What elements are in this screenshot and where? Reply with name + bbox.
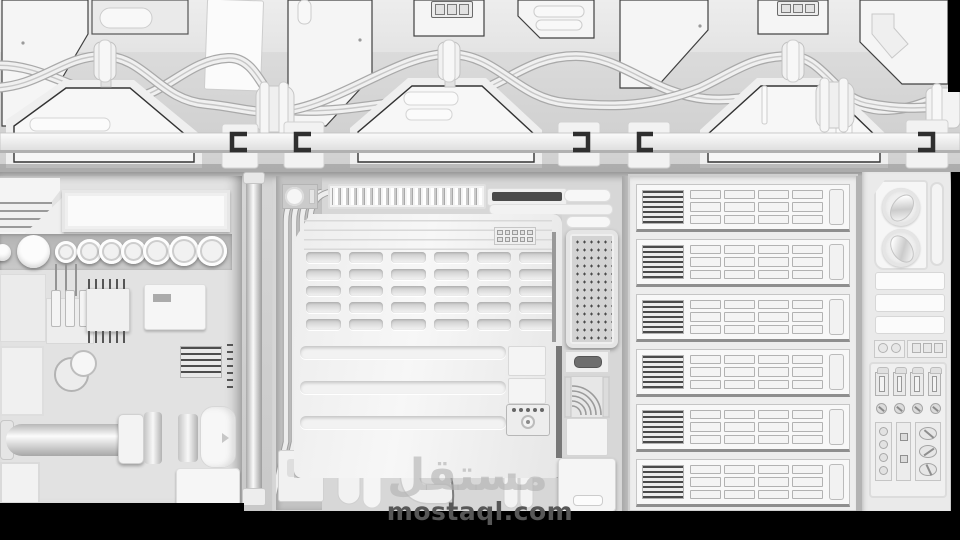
tray-cell	[758, 270, 789, 279]
tray-cell	[758, 245, 789, 254]
rack-vent-grille	[642, 410, 684, 444]
tray-cell	[758, 312, 789, 321]
oval-knob-strip	[915, 422, 941, 481]
tray-cell	[690, 325, 721, 334]
ctrl-dot	[519, 408, 523, 412]
midsq	[900, 433, 908, 441]
tray-cell	[690, 202, 721, 211]
rack-vent-grille	[642, 465, 684, 499]
greeble-wall-render: مستقل mostaql.com	[0, 0, 960, 540]
tray-cell	[792, 215, 823, 224]
rbar	[875, 316, 945, 334]
handle-pill	[536, 20, 582, 30]
handle-pill	[534, 6, 584, 17]
arc	[572, 386, 601, 415]
vent-slot	[349, 252, 384, 263]
ovalknob	[919, 463, 937, 476]
tray-cell	[690, 465, 721, 474]
groove	[300, 346, 506, 359]
piston-flange	[144, 412, 162, 464]
ovalknob	[919, 427, 937, 440]
access-plate	[508, 346, 546, 376]
vent-slot	[434, 269, 469, 280]
small-bar	[309, 189, 315, 204]
minicirc	[878, 343, 888, 353]
tray-cell	[690, 355, 721, 364]
tray-cell	[792, 380, 823, 389]
screw	[930, 403, 941, 414]
keysw	[893, 372, 907, 396]
tray-cell	[758, 477, 789, 486]
dip-cell	[497, 230, 503, 235]
pipe-cap	[243, 172, 265, 184]
tray-cell	[758, 202, 789, 211]
screw	[912, 403, 923, 414]
tray-cell	[758, 435, 789, 444]
right-black-edge	[951, 172, 960, 540]
vent-slot	[306, 302, 341, 313]
dark-display-bar	[492, 192, 562, 201]
vent-slot	[477, 269, 512, 280]
dip-cell	[527, 230, 533, 235]
vent-slot	[391, 252, 426, 263]
groove-group	[300, 346, 506, 451]
tray-cell	[758, 380, 789, 389]
tray-cell	[690, 490, 721, 499]
rack-tray-grid	[690, 465, 823, 499]
tray-cell	[690, 410, 721, 419]
light-box-panel	[62, 190, 230, 232]
tray-cell	[724, 380, 755, 389]
dial-knob	[169, 236, 199, 266]
dash-column	[227, 344, 233, 392]
pipe-clamp-ridge	[443, 40, 455, 82]
sidescrew	[879, 440, 888, 449]
tray-cell	[724, 477, 755, 486]
gauge	[882, 188, 920, 226]
vent-slot	[519, 319, 554, 330]
dip-cell	[505, 230, 511, 235]
rack-handle	[829, 299, 844, 335]
rack-handle	[829, 354, 844, 390]
tray-cell	[724, 367, 755, 376]
screw-row	[875, 403, 941, 414]
pill-slot	[566, 216, 611, 228]
hatch-handle	[30, 118, 110, 131]
section-shadow	[0, 164, 960, 172]
pipe-clamp-ridge	[99, 40, 111, 82]
tray-cell	[758, 422, 789, 431]
rack-vent-grille	[642, 300, 684, 334]
rack-tray-grid	[690, 245, 823, 279]
sidescrew	[879, 453, 888, 462]
tray-cell	[758, 367, 789, 376]
blank-box	[176, 468, 240, 506]
tray-cell	[758, 355, 789, 364]
tray-cell	[724, 245, 755, 254]
rack-tray-grid	[690, 300, 823, 334]
rbar	[875, 272, 945, 290]
watermark-logo: مستقل	[398, 450, 548, 501]
vent-slot	[391, 302, 426, 313]
tray-cell	[758, 410, 789, 419]
tray-cell	[792, 300, 823, 309]
tray-cell	[690, 300, 721, 309]
sidescrew	[879, 427, 888, 436]
ovalknob	[919, 445, 937, 458]
mini-circle-box	[874, 340, 905, 358]
tray-cell	[758, 190, 789, 199]
server-rack-row	[636, 459, 850, 507]
vent-slot	[519, 286, 554, 297]
tray-cell	[758, 215, 789, 224]
hatch-handle	[406, 109, 452, 120]
minisq	[923, 343, 932, 353]
plug	[65, 290, 75, 327]
ring-clamp-ring	[820, 78, 829, 132]
tray-cell	[792, 477, 823, 486]
tray-cell	[792, 465, 823, 474]
screw-dot	[358, 38, 361, 41]
dip-cell	[527, 237, 533, 242]
piston-flange	[178, 414, 198, 462]
ring-clamp-ring	[260, 82, 269, 136]
pipe-clamp-ridge	[787, 40, 799, 82]
vent-slot	[306, 319, 341, 330]
key-switch-row	[875, 372, 941, 396]
tray-cell	[724, 435, 755, 444]
tray-cell	[792, 312, 823, 321]
arc	[572, 406, 581, 415]
rack-handle	[829, 189, 844, 225]
vent-slot	[477, 319, 512, 330]
keysw	[910, 372, 924, 396]
connector-block	[777, 1, 819, 16]
ctrl-dot	[540, 408, 544, 412]
rail-bar-shadow	[0, 150, 960, 153]
knob-square	[282, 184, 318, 209]
switch-panel	[869, 362, 947, 498]
midsq	[900, 455, 908, 463]
rack-tray-grid	[690, 190, 823, 224]
heatsink-grille	[180, 346, 222, 378]
vent-slot	[519, 302, 554, 313]
screw	[876, 403, 887, 414]
hatch-panels	[6, 78, 888, 168]
server-rack	[628, 174, 858, 512]
tray-cell	[690, 312, 721, 321]
tray-cell	[690, 270, 721, 279]
vertical-pipe	[246, 174, 262, 506]
handle-pill	[298, 0, 311, 24]
vent-slot	[306, 286, 341, 297]
vent-slot	[349, 319, 384, 330]
dip-cell	[512, 230, 518, 235]
square-strip	[896, 422, 912, 481]
vent-slot	[391, 286, 426, 297]
chip-pins-top	[88, 279, 128, 289]
vent-slot-grid	[306, 252, 554, 330]
tray-cell	[792, 422, 823, 431]
tray-cell	[724, 325, 755, 334]
vent-slot	[349, 269, 384, 280]
vent-slot	[306, 269, 341, 280]
vent-slot	[477, 252, 512, 263]
conn-sq	[793, 4, 803, 13]
vent-slot	[391, 319, 426, 330]
ctrl-dot	[533, 408, 537, 412]
sub-panels	[875, 422, 941, 481]
window-box	[564, 350, 610, 374]
minisq	[934, 343, 943, 353]
tray-cell	[724, 312, 755, 321]
server-rack-row	[636, 184, 850, 232]
screw-dot	[698, 24, 701, 27]
conn-sq	[805, 4, 815, 13]
pill-slot	[489, 204, 613, 215]
conn-sq	[781, 4, 791, 13]
slat-ticker-strip	[328, 184, 486, 209]
top-wall-section	[0, 0, 960, 172]
rack-handle	[829, 409, 844, 445]
vent-slot	[434, 252, 469, 263]
vent-slot	[391, 269, 426, 280]
groove	[300, 416, 506, 429]
rack-vent-grille	[642, 245, 684, 279]
tray-cell	[724, 490, 755, 499]
tray-cell	[724, 202, 755, 211]
vent-slot	[434, 286, 469, 297]
keysw	[928, 372, 942, 396]
vent-slot	[349, 286, 384, 297]
rack-handle	[829, 244, 844, 280]
tray-cell	[724, 465, 755, 474]
vent-slot	[477, 302, 512, 313]
tray-cell	[792, 270, 823, 279]
server-rack-row	[636, 404, 850, 452]
valve-wheel	[54, 350, 96, 390]
vent-slot	[519, 269, 554, 280]
tray-cell	[690, 422, 721, 431]
screw-dot	[21, 41, 24, 44]
dark-slot	[552, 232, 556, 342]
server-rack-row	[636, 239, 850, 287]
dip-cell	[505, 237, 511, 242]
tray-cell	[792, 367, 823, 376]
hatch-slot	[762, 86, 767, 124]
tray-cell	[724, 355, 755, 364]
minicirc	[891, 343, 901, 353]
rack-handle	[829, 464, 844, 500]
control-box	[506, 404, 550, 436]
sidescrew	[879, 466, 888, 475]
conn-sq	[435, 4, 445, 15]
dark-window	[574, 356, 602, 368]
tray-cell	[690, 380, 721, 389]
vent-slot	[477, 286, 512, 297]
tray-cell	[724, 410, 755, 419]
tray-cell	[758, 490, 789, 499]
tray-cell	[724, 300, 755, 309]
pipe-base	[242, 488, 266, 506]
server-rack-row	[636, 294, 850, 342]
top-right-black-edge	[948, 0, 960, 92]
tray-cell	[792, 257, 823, 266]
ring-clamp-ring	[839, 78, 848, 132]
tray-cell	[690, 435, 721, 444]
dial-knob	[197, 236, 227, 266]
tray-cell	[792, 325, 823, 334]
chip-module	[86, 288, 130, 332]
dial-knob	[55, 241, 77, 263]
rbar	[875, 294, 945, 312]
side-screw-strip	[875, 422, 892, 481]
piston-clamp	[118, 414, 144, 464]
connector-block	[431, 1, 473, 18]
small-dial	[285, 187, 304, 206]
vent-slot	[434, 302, 469, 313]
tray-cell	[690, 367, 721, 376]
rack-vent-grille	[642, 190, 684, 224]
dial-knob	[17, 235, 50, 268]
tray-cell	[724, 257, 755, 266]
conn-sq	[447, 4, 457, 15]
perforated-panel	[566, 230, 618, 348]
tray-cell	[690, 190, 721, 199]
dip-cell	[512, 237, 518, 242]
dark-slot	[556, 346, 562, 458]
watermark-url: mostaql.com	[385, 497, 575, 526]
tray-cell	[792, 245, 823, 254]
ctrl-dot	[512, 408, 516, 412]
vertical-slot	[930, 182, 944, 266]
tray-cell	[690, 245, 721, 254]
tray-cell	[758, 465, 789, 474]
vent-slot	[434, 319, 469, 330]
handle-pill	[100, 8, 152, 28]
rail-bar	[0, 133, 960, 152]
tray-cell	[724, 270, 755, 279]
conduit-arc-box	[564, 376, 610, 418]
arc	[572, 401, 586, 415]
tray-cell	[758, 300, 789, 309]
tray-cell	[758, 325, 789, 334]
dial-knob	[143, 237, 171, 265]
control-dots	[507, 405, 549, 412]
tray-cell	[792, 410, 823, 419]
tray-cell	[792, 190, 823, 199]
vent-slot	[349, 302, 384, 313]
groove	[300, 381, 506, 394]
control-knob	[521, 415, 535, 429]
tray-cell	[690, 257, 721, 266]
gauge	[882, 229, 920, 267]
dip-switch-block	[494, 227, 536, 245]
server-rack-row	[636, 349, 850, 397]
conn-sq	[459, 4, 469, 15]
conduit-arcs	[565, 377, 609, 417]
blank-box	[0, 462, 40, 504]
chip-pins-bottom	[88, 331, 128, 343]
blank-plate	[0, 346, 44, 416]
rack-vent-grille	[642, 355, 684, 389]
pill-slot	[564, 189, 611, 202]
hatch-handle	[404, 92, 458, 105]
rack-tray-grid	[690, 355, 823, 389]
arc-rail	[565, 377, 571, 417]
tray-cell	[758, 257, 789, 266]
blank-plate	[0, 274, 46, 342]
rack-tray-grid	[690, 410, 823, 444]
tray-cell	[792, 202, 823, 211]
tray-cell	[690, 477, 721, 486]
ctrl-dot	[526, 408, 530, 412]
tray-cell	[690, 215, 721, 224]
tray-cell	[792, 355, 823, 364]
tray-cell	[724, 422, 755, 431]
access-plate	[508, 378, 546, 404]
vent-slot	[519, 252, 554, 263]
tray-cell	[792, 435, 823, 444]
vent-slot	[306, 252, 341, 263]
screw	[894, 403, 905, 414]
tray-cell	[724, 215, 755, 224]
arc-rail	[603, 377, 609, 417]
capsule-housing	[200, 406, 236, 468]
tray-cell	[724, 190, 755, 199]
dip-cell	[520, 230, 526, 235]
dip-cell	[497, 237, 503, 242]
tray-cell	[792, 490, 823, 499]
bar-stack	[875, 272, 945, 334]
blank-box	[566, 418, 608, 456]
gauge-panel	[874, 180, 928, 270]
plug	[51, 290, 61, 327]
right-console	[862, 172, 950, 512]
dip-cell	[520, 237, 526, 242]
minisq	[912, 343, 921, 353]
keysw	[875, 372, 889, 396]
labeled-box	[144, 284, 206, 330]
mini-square-box	[907, 340, 947, 358]
